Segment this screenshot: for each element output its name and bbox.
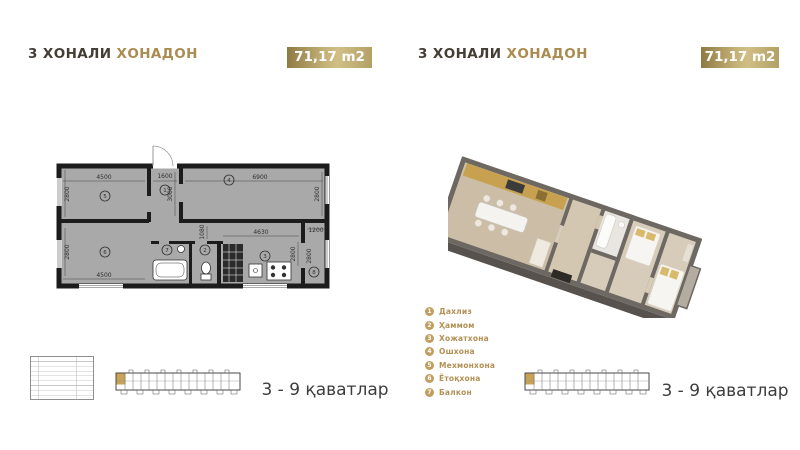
legend-label: Балкон bbox=[439, 388, 472, 397]
right-panel: 3 ХОНАЛИ ХОНАДОН 71,17 m2 bbox=[400, 0, 800, 450]
left-panel: 3 ХОНАЛИ ХОНАДОН 71,17 m2 bbox=[0, 0, 400, 450]
dim-room5-h: 2800 bbox=[64, 186, 71, 201]
legend-label: Мехмонхона bbox=[439, 361, 495, 370]
legend-number-badge: 2 bbox=[425, 321, 434, 330]
legend-number-badge: 7 bbox=[425, 388, 434, 397]
legend-label: Ётоқхона bbox=[439, 374, 481, 383]
dim-room6-h: 2800 bbox=[64, 244, 71, 259]
room-num-bath: 7 bbox=[165, 248, 169, 254]
legend-item: 4 Ошхона bbox=[425, 345, 495, 358]
title-accent: ХОНАДОН bbox=[117, 46, 198, 62]
page: { "colors": { "gold_accent": "#ab8c50", … bbox=[0, 0, 800, 450]
legend-item: 1 Дахлиз bbox=[425, 305, 495, 318]
room-num-balcony: 8 bbox=[312, 270, 316, 276]
area-badge: 71,17 m2 bbox=[287, 47, 372, 68]
legend-label: Ҳаммом bbox=[439, 321, 475, 330]
explication-table bbox=[30, 356, 94, 400]
legend-item: 5 Мехмонхона bbox=[425, 359, 495, 372]
building-elevation-strip bbox=[115, 368, 241, 398]
dim-room6-w: 4500 bbox=[96, 272, 111, 279]
kitchen-sink-icon bbox=[249, 264, 262, 277]
floors-label: 3 - 9 қаватлар bbox=[250, 380, 400, 400]
room-num-wc: 2 bbox=[203, 248, 207, 254]
floor-plan-2d: 4500 2800 1600 3000 6900 2800 4500 2800 … bbox=[55, 144, 335, 292]
apartment-title: 3 ХОНАЛИ ХОНАДОН bbox=[418, 46, 588, 62]
room-num-bedroom1: 5 bbox=[103, 194, 107, 200]
room-legend: 1 Дахлиз 2 Ҳаммом 3 Хожатхона 4 Ошхона 5… bbox=[425, 305, 495, 399]
legend-item: 7 Балкон bbox=[425, 385, 495, 398]
dim-hall-w: 1600 bbox=[157, 173, 172, 180]
floors-label: 3 - 9 қаватлар bbox=[655, 381, 795, 401]
title-primary: 3 ХОНАЛИ bbox=[418, 46, 501, 62]
title-primary: 3 ХОНАЛИ bbox=[28, 46, 111, 62]
dim-room5-w: 4500 bbox=[96, 174, 111, 181]
area-badge: 71,17 m2 bbox=[701, 47, 779, 68]
toilet-icon bbox=[201, 262, 211, 280]
room-num-living: 4 bbox=[227, 178, 231, 184]
legend-number-badge: 1 bbox=[425, 307, 434, 316]
legend-number-badge: 5 bbox=[425, 361, 434, 370]
legend-label: Дахлиз bbox=[439, 307, 472, 316]
bathtub-icon bbox=[153, 260, 187, 280]
dim-room4-w: 6900 bbox=[252, 174, 267, 181]
sink-icon bbox=[178, 246, 185, 253]
floor-plan-3d bbox=[448, 120, 720, 318]
building-elevation-strip bbox=[524, 368, 650, 398]
dim-room4-h: 2800 bbox=[314, 186, 321, 201]
title-accent: ХОНАДОН bbox=[507, 46, 588, 62]
dim-balcony-w: 1200 bbox=[308, 227, 323, 234]
dim-kitchen-h: 2800 bbox=[290, 246, 297, 261]
legend-item: 2 Ҳаммом bbox=[425, 318, 495, 331]
legend-label: Хожатхона bbox=[439, 334, 489, 343]
legend-item: 3 Хожатхона bbox=[425, 332, 495, 345]
legend-number-badge: 3 bbox=[425, 334, 434, 343]
kitchen-cabinet-icon bbox=[223, 244, 243, 282]
room-num-bedroom2: 6 bbox=[103, 250, 107, 256]
legend-label: Ошхона bbox=[439, 347, 475, 356]
apartment-title: 3 ХОНАЛИ ХОНАДОН bbox=[28, 46, 198, 62]
dim-corridor: 1080 bbox=[199, 224, 206, 239]
dim-balcony-h: 2800 bbox=[306, 248, 313, 263]
entrance-door bbox=[153, 146, 177, 169]
legend-item: 6 Ётоқхона bbox=[425, 372, 495, 385]
room-num-kitchen: 3 bbox=[263, 254, 267, 260]
room-num-hall: 1 bbox=[163, 188, 167, 194]
stove-icon bbox=[267, 262, 291, 280]
legend-number-badge: 4 bbox=[425, 347, 434, 356]
legend-number-badge: 6 bbox=[425, 374, 434, 383]
dim-kitchen-w: 4630 bbox=[253, 229, 268, 236]
